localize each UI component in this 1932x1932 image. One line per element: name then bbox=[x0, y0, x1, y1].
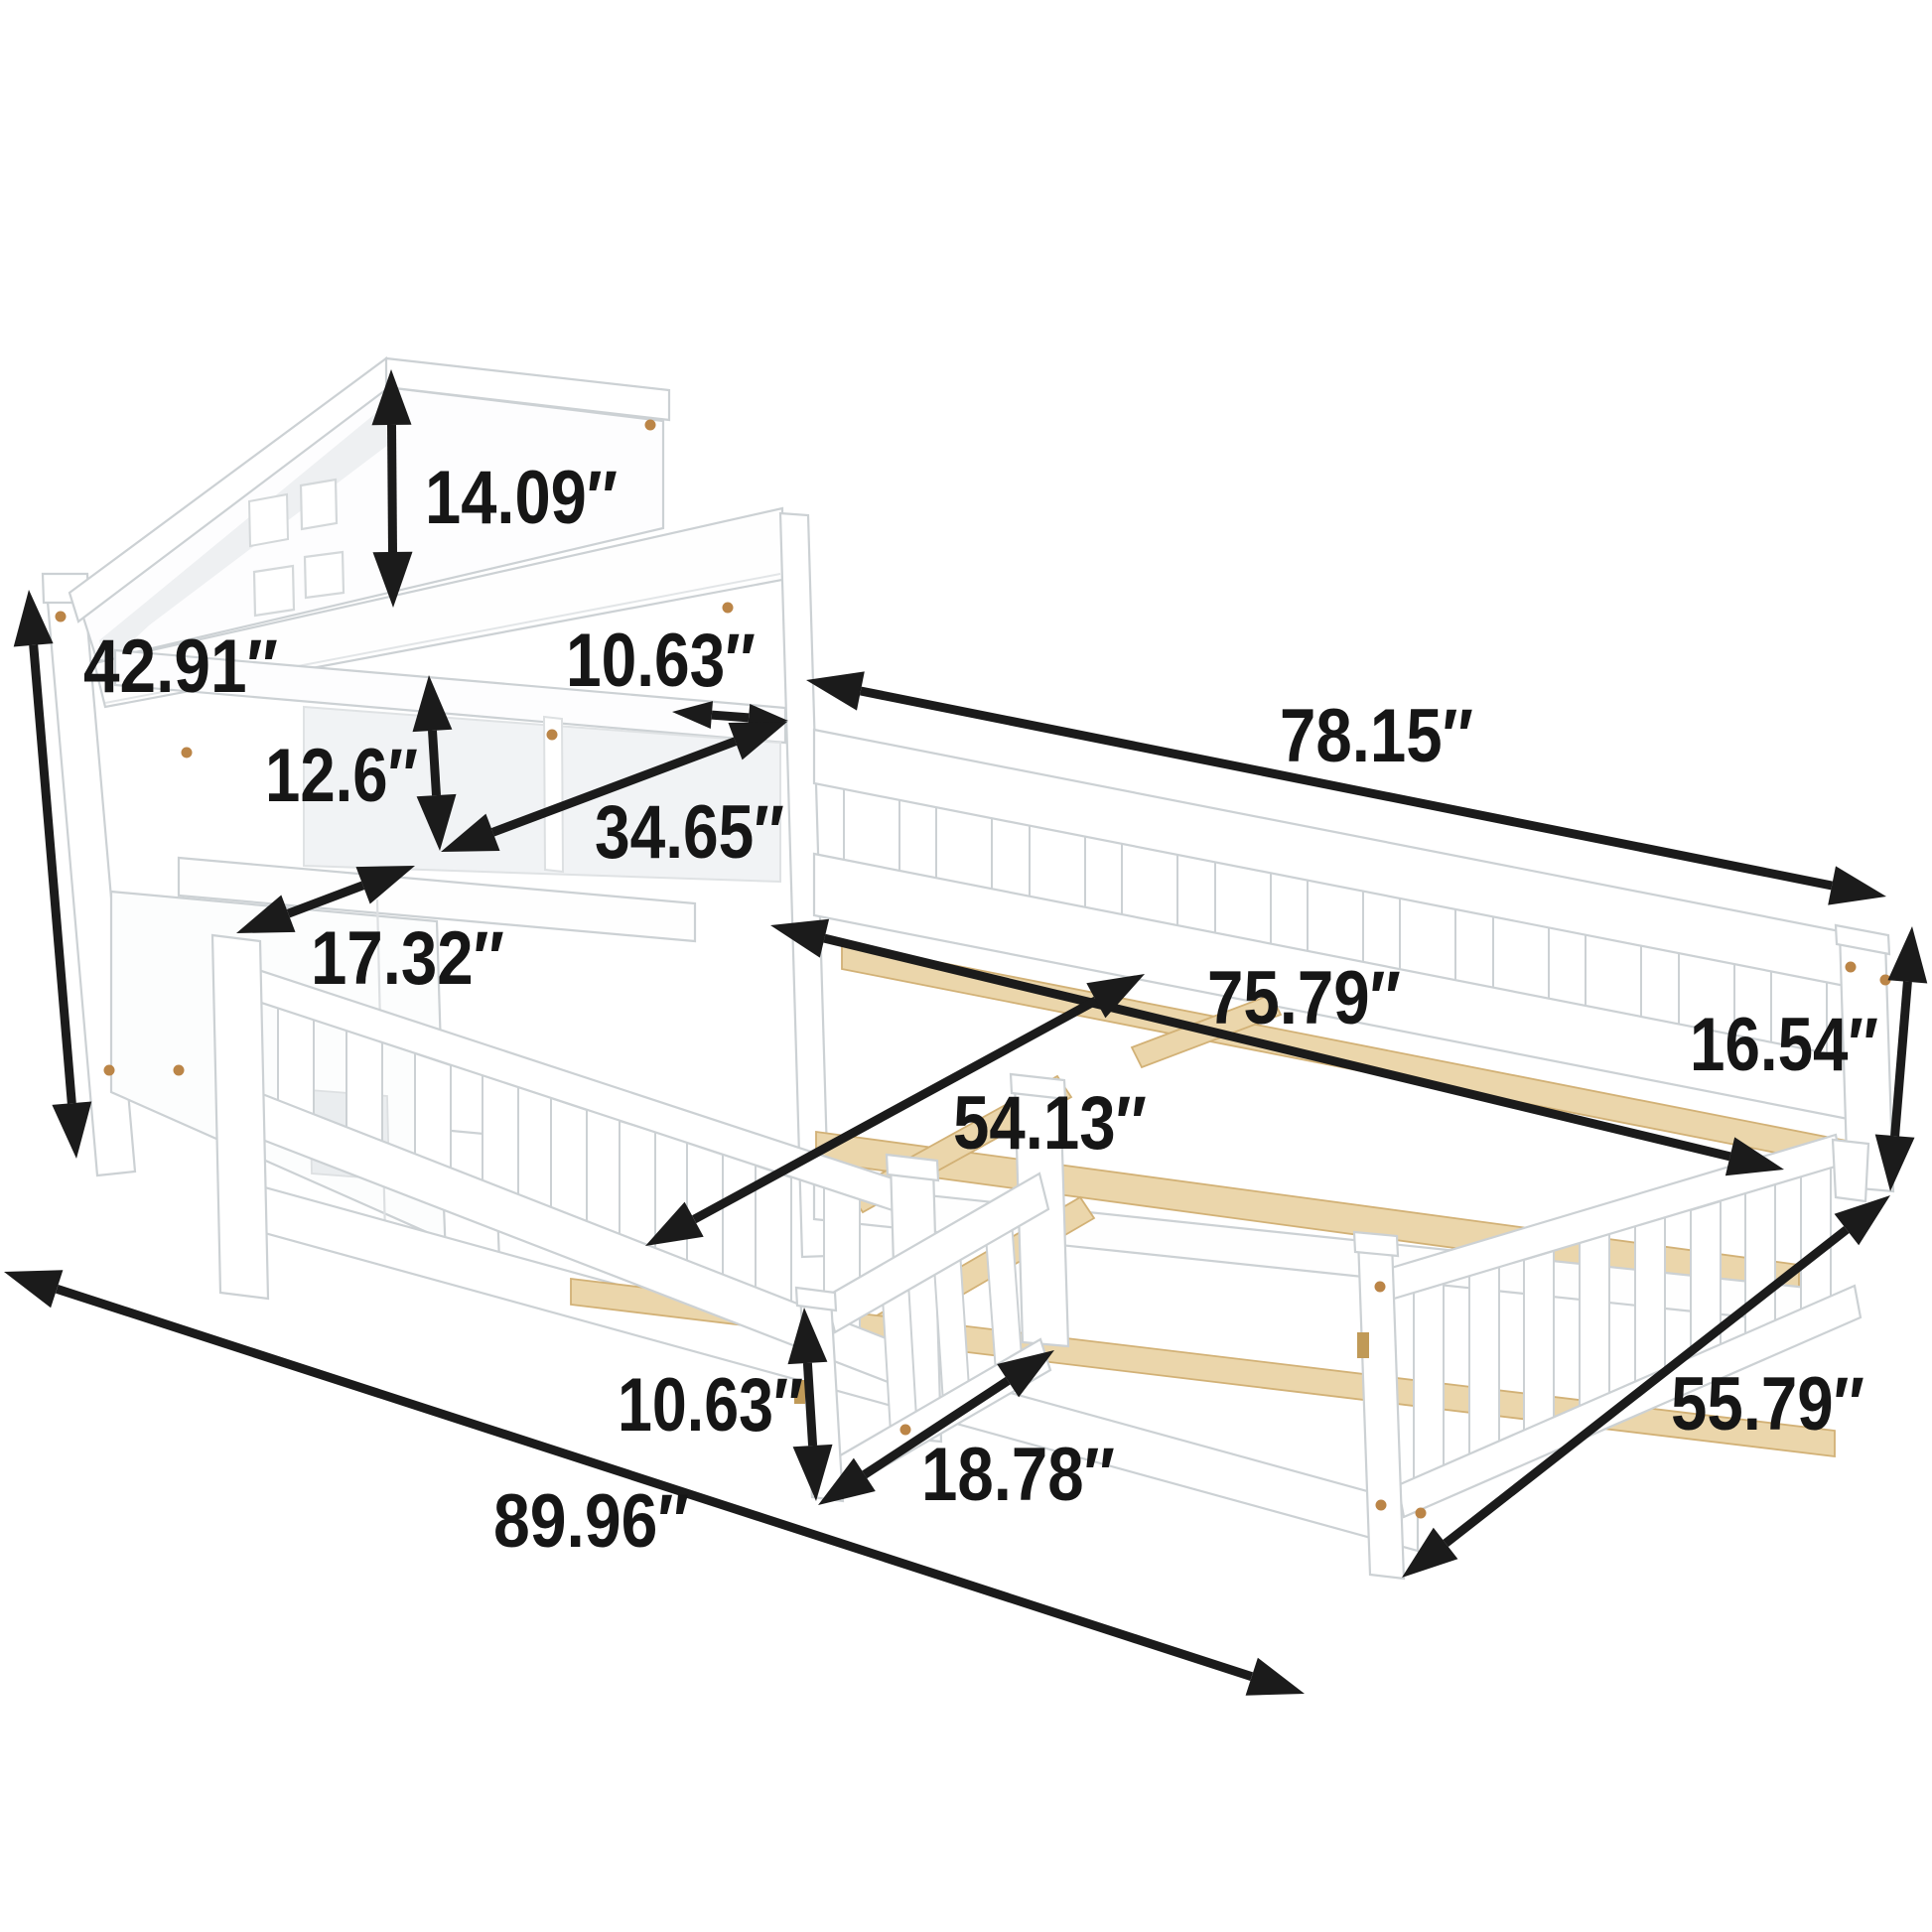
svg-text:17.32″: 17.32″ bbox=[311, 916, 504, 1001]
svg-text:55.79″: 55.79″ bbox=[1671, 1362, 1864, 1447]
svg-text:10.63″: 10.63″ bbox=[566, 619, 756, 703]
svg-text:34.65″: 34.65″ bbox=[595, 790, 784, 875]
svg-text:54.13″: 54.13″ bbox=[953, 1081, 1147, 1166]
svg-text:78.15″: 78.15″ bbox=[1280, 694, 1473, 778]
svg-text:42.91″: 42.91″ bbox=[83, 624, 278, 709]
svg-text:75.79″: 75.79″ bbox=[1207, 956, 1401, 1040]
svg-text:89.96″: 89.96″ bbox=[493, 1479, 689, 1564]
svg-text:10.63″: 10.63″ bbox=[618, 1363, 803, 1448]
svg-text:12.6″: 12.6″ bbox=[265, 734, 418, 818]
svg-text:14.09″: 14.09″ bbox=[425, 456, 618, 540]
svg-text:16.54″: 16.54″ bbox=[1690, 1003, 1878, 1087]
svg-text:18.78″: 18.78″ bbox=[921, 1433, 1115, 1517]
